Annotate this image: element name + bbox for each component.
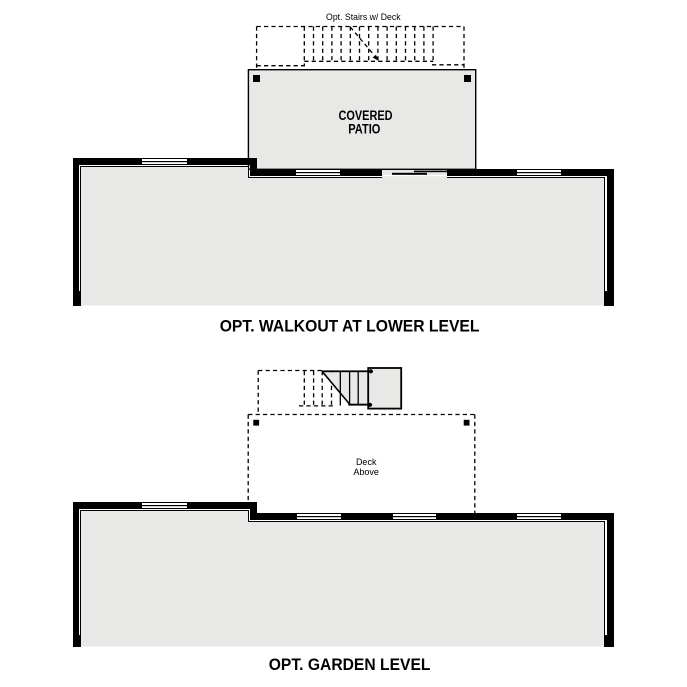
svg-text:Deck: Deck	[356, 457, 377, 467]
svg-text:Above: Above	[353, 467, 379, 477]
svg-text:Opt. Stairs w/ Deck: Opt. Stairs w/ Deck	[326, 12, 401, 22]
svg-text:OPT. GARDEN LEVEL: OPT. GARDEN LEVEL	[269, 656, 431, 674]
svg-text:PATIO: PATIO	[348, 121, 380, 136]
svg-text:OPT. WALKOUT AT LOWER LEVEL: OPT. WALKOUT AT LOWER LEVEL	[220, 317, 480, 335]
